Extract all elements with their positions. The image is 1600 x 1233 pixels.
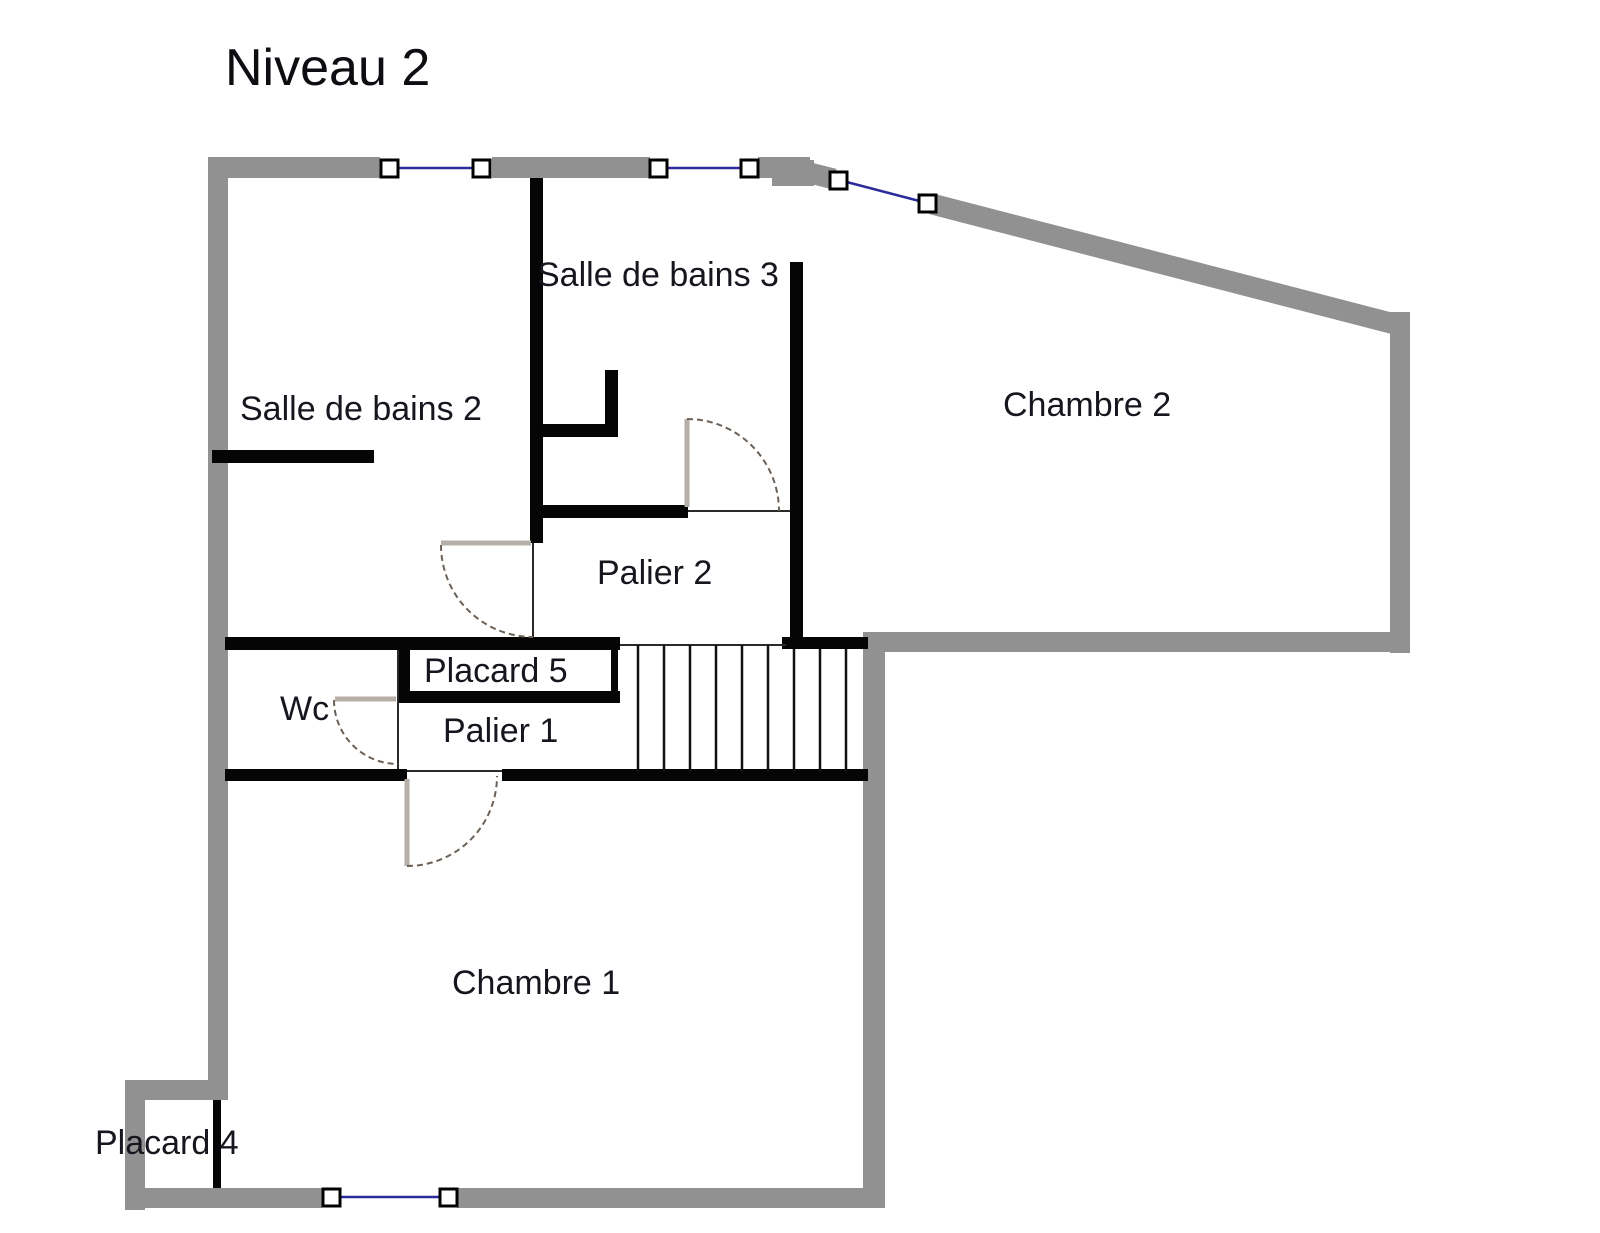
wall-palier2-right: [790, 262, 803, 647]
window-marker: [440, 1189, 457, 1206]
room-label-salle-de-bains-2: Salle de bains 2: [240, 392, 482, 426]
outer-wall-chambre1-right: [863, 632, 885, 1208]
door-arc-sdb2: [441, 545, 533, 637]
floor-plan: Niveau 2 Salle de bains 3 Salle de bains…: [0, 0, 1600, 1233]
outer-wall-top-left-segment: [208, 157, 380, 178]
door-arc-sdb3: [687, 419, 779, 511]
outer-wall-diagonal-b: [932, 204, 1402, 326]
window-marker: [919, 195, 936, 212]
window-line: [839, 180, 927, 203]
wall-wc-placard5-top: [225, 637, 620, 650]
room-label-salle-de-bains-3: Salle de bains 3: [537, 258, 779, 292]
room-label-palier-2: Palier 2: [597, 556, 712, 590]
window-marker: [323, 1189, 340, 1206]
room-label-placard-4: Placard 4: [95, 1126, 239, 1160]
staircase: [620, 645, 846, 772]
wall-chambre1-top-right: [502, 769, 868, 781]
page-title: Niveau 2: [225, 42, 430, 94]
window-marker: [650, 160, 667, 177]
wall-chambre1-top-left: [225, 769, 407, 781]
outer-wall-top-middle-segment: [492, 157, 650, 178]
outer-wall-bottom-left-segment: [125, 1188, 322, 1208]
room-label-chambre-1: Chambre 1: [452, 966, 620, 1000]
wall-sdb2-stub: [212, 450, 374, 463]
room-label-placard-5: Placard 5: [424, 654, 568, 688]
wall-palier2-top: [530, 505, 688, 518]
room-label-palier-1: Palier 1: [443, 714, 558, 748]
wall-placard5-bottom: [398, 691, 620, 703]
room-label-wc: Wc: [280, 692, 329, 726]
window-marker: [830, 172, 847, 189]
window-marker: [381, 160, 398, 177]
door-arc-wc: [334, 700, 398, 764]
floor-plan-drawing: [0, 0, 1600, 1233]
room-label-chambre-2: Chambre 2: [1003, 388, 1171, 422]
window-marker: [473, 160, 490, 177]
wall-sdb2-sdb3-divider: [530, 178, 543, 543]
window-marker: [741, 160, 758, 177]
outer-wall-chambre2-bottom: [863, 632, 1410, 652]
wall-stairs-top-right: [782, 637, 868, 649]
windows: [323, 160, 936, 1206]
outer-wall-left: [208, 157, 228, 1100]
wall-sdb3-stub-horizontal: [530, 424, 618, 437]
outer-wall-bottom-right-segment: [457, 1188, 885, 1208]
door-arc-chambre1: [407, 776, 497, 866]
wall-placard5-right: [611, 637, 618, 703]
outer-wall-right: [1390, 312, 1410, 653]
